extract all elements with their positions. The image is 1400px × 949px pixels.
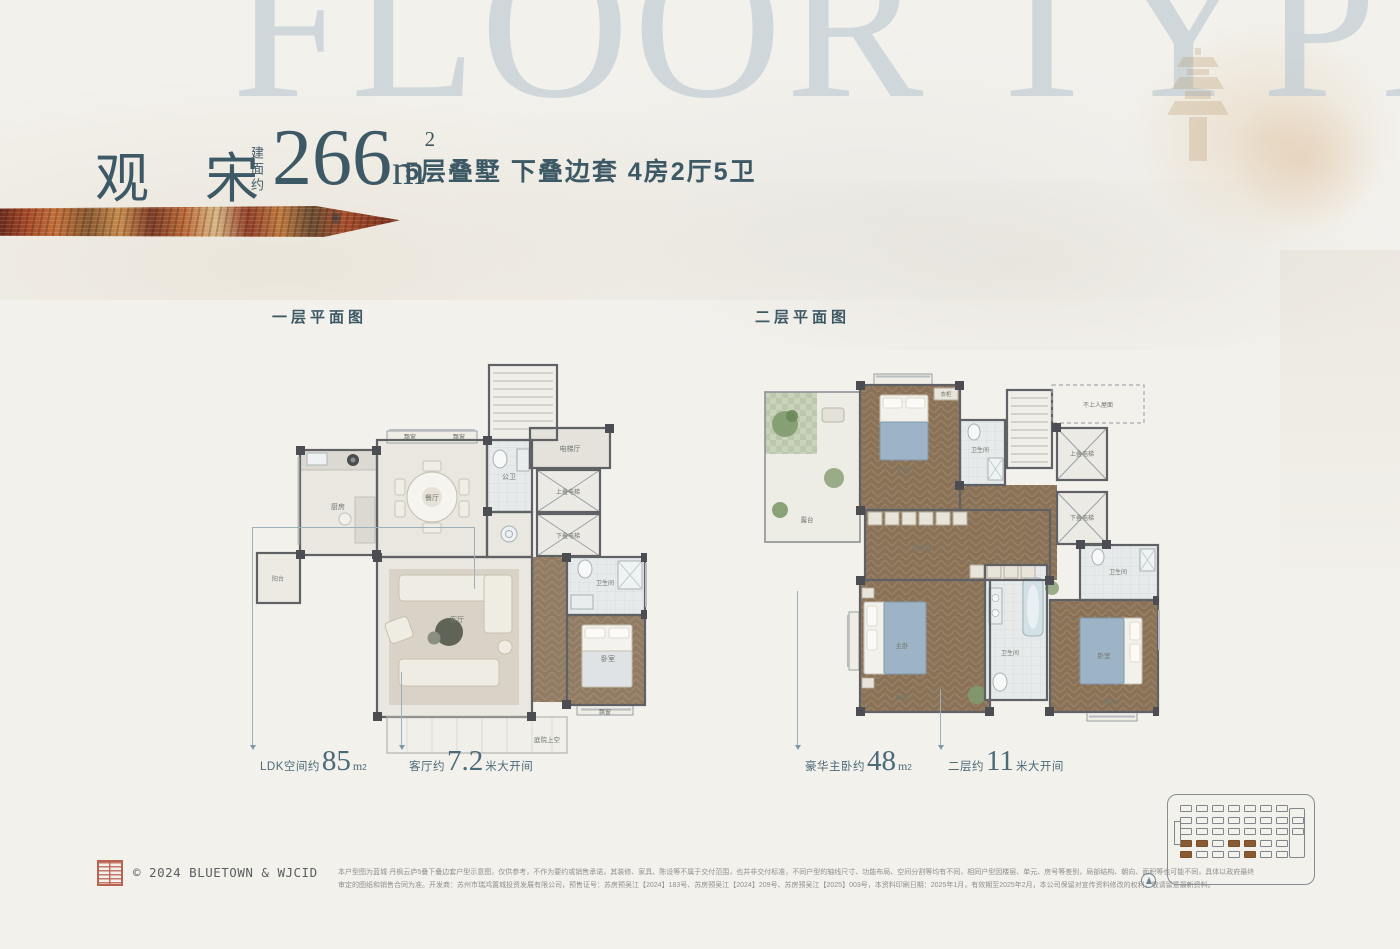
room-label-elevator-hall: 电梯厅: [560, 444, 581, 453]
minimap-highlight-building: [1244, 840, 1256, 847]
room-label-dining: 餐厅: [425, 493, 439, 502]
room-label-living: 客厅: [450, 615, 464, 624]
callout-sup: 2: [907, 763, 911, 772]
minimap-building: [1228, 851, 1240, 858]
minimap-left-building: [1174, 821, 1181, 845]
minimap-building: [1212, 805, 1224, 812]
callout-value: 11: [986, 747, 1014, 776]
first-floor-plan-title: 一层平面图: [272, 306, 367, 327]
callout-ldk-area: LDK空间约85m2: [260, 747, 367, 776]
room-label-elevator-up: 上叠电梯: [1070, 450, 1094, 458]
callout-prefix: 豪华主卧约: [805, 758, 865, 774]
site-minimap: [1167, 794, 1315, 885]
callout-line: [940, 689, 941, 745]
area-prefix-label: 建面约: [249, 146, 264, 194]
pagoda-silhouette: [1168, 46, 1228, 166]
room-label-bay1: 飘窗: [404, 433, 416, 441]
callout-second-floor-span: 二层约11米大开间: [948, 747, 1064, 776]
minimap-building: [1196, 828, 1208, 835]
callout-prefix: 二层约: [948, 758, 984, 774]
minimap-building: [1276, 851, 1288, 858]
minimap-highlight-building: [1244, 851, 1256, 858]
callout-master-area: 豪华主卧约48m2: [805, 747, 912, 776]
minimap-building: [1180, 817, 1192, 824]
callout-unit: m: [898, 759, 907, 774]
room-label-bath-right: 卫生间: [1109, 568, 1127, 576]
disclaimer-line-1: 本户型图为蓝城·丹枫云庐5叠下叠边套户型示意图，仅供参考，不作为要约或销售承诺，…: [338, 866, 1133, 879]
area-superscript: 2: [425, 127, 436, 151]
room-label-cloakroom: 衣帽间: [912, 543, 932, 552]
callout-value: 85: [322, 747, 351, 776]
minimap-tall-building: [1289, 808, 1305, 858]
minimap-building: [1260, 828, 1272, 835]
minimap-building: [1196, 851, 1208, 858]
area-number: 266: [272, 114, 392, 202]
minimap-highlight-building: [1228, 840, 1240, 847]
minimap-building: [1212, 817, 1224, 824]
room-label-powder: 公卫: [502, 473, 516, 481]
minimap-building: [1276, 817, 1288, 824]
background-wash: [1280, 250, 1400, 730]
minimap-building: [1180, 828, 1192, 835]
room-label-balcony: 阳台: [272, 575, 284, 583]
copyright-text: © 2024 BLUETOWN & WJCID: [133, 865, 318, 880]
room-label-bay3: 飘窗: [599, 708, 611, 716]
callout-arrow-icon: [938, 745, 944, 750]
callout-arrow-icon: [250, 745, 256, 750]
room-label-master-bath: 卫生间: [1001, 649, 1019, 657]
room-label-master: 主卧: [896, 641, 910, 650]
room-label-roof: 不上人屋面: [1083, 401, 1113, 409]
callout-sup: 2: [362, 763, 366, 772]
minimap-building: [1228, 817, 1240, 824]
poster-page: FLOOR TYPE 观宋 建面约 266m2 5层叠墅 下叠边套 4房2厅5卫…: [0, 0, 1400, 949]
room-label-bay2: 飘窗: [1104, 698, 1116, 706]
minimap-building: [1260, 817, 1272, 824]
room-label-bedroom-right: 卧室: [1098, 651, 1112, 660]
callout-unit: m: [353, 759, 362, 774]
minimap-building: [1260, 851, 1272, 858]
minimap-building: [1212, 828, 1224, 835]
minimap-highlight-building: [1180, 851, 1192, 858]
room-label-wardrobe: 衣柜: [940, 390, 952, 398]
minimap-building: [1276, 840, 1288, 847]
minimap-building: [1196, 805, 1208, 812]
callout-prefix: 客厅约: [409, 758, 445, 774]
minimap-building: [1276, 805, 1288, 812]
callout-suffix: 米大开间: [485, 758, 533, 774]
disclaimer-line-2: 审定的图纸和销售合同为准。开发商：苏州市瑞鸿置城投资发展有限公司，预售证号：苏房…: [338, 879, 1133, 892]
room-label-elevator-up: 上叠电梯: [556, 488, 580, 496]
minimap-building: [1180, 805, 1192, 812]
unit-spec: 5层叠墅 下叠边套 4房2厅5卫: [405, 152, 757, 188]
minimap-building: [1244, 805, 1256, 812]
background-wash: [640, 180, 1400, 350]
room-label-bedroom-top: 卧室: [898, 465, 912, 474]
callout-arrow-icon: [399, 745, 405, 750]
callout-living-span: 客厅约7.2米大开间: [409, 747, 533, 776]
plan2-master-furniture: [862, 588, 926, 688]
minimap-highlight-building: [1180, 840, 1192, 847]
minimap-building: [1244, 817, 1256, 824]
callout-line: [401, 672, 402, 745]
room-label-bath-top: 卫生间: [971, 446, 989, 454]
minimap-highlight-building: [1196, 840, 1208, 847]
second-floor-plan: 露台 卧室 衣柜 卫生间 不上人屋面 上叠电梯 下叠电梯 衣帽间 主卧 卫生间 …: [752, 350, 1162, 755]
room-label-bay2: 飘窗: [453, 433, 465, 441]
plan2-bedroom-right-furniture: [1080, 618, 1142, 684]
room-label-bath: 卫生间: [596, 579, 614, 587]
plan1-living-furniture: [384, 569, 519, 705]
compass-icon: [1141, 873, 1156, 888]
callout-value: 48: [867, 747, 896, 776]
minimap-building: [1276, 828, 1288, 835]
second-floor-plan-title: 二层平面图: [755, 306, 850, 327]
minimap-building: [1228, 828, 1240, 835]
room-label-courtyard: 庭院上空: [534, 735, 561, 744]
room-label-kitchen: 厨房: [331, 502, 345, 511]
disclaimer-text: 本户型图为蓝城·丹枫云庐5叠下叠边套户型示意图，仅供参考，不作为要约或销售承诺，…: [338, 866, 1133, 892]
minimap-building: [1228, 805, 1240, 812]
callout-value: 7.2: [447, 747, 483, 776]
minimap-building: [1212, 851, 1224, 858]
callout-line: [252, 527, 474, 528]
callout-line: [252, 527, 253, 745]
minimap-building: [1212, 840, 1224, 847]
callout-line: [474, 527, 475, 589]
callout-prefix: LDK空间约: [260, 758, 320, 774]
minimap-building: [1260, 840, 1272, 847]
minimap-building: [1244, 828, 1256, 835]
minimap-building: [1260, 805, 1272, 812]
minimap-building: [1196, 817, 1208, 824]
callout-arrow-icon: [795, 745, 801, 750]
red-seal-stamp: [97, 860, 123, 886]
first-floor-plan: 厨房 餐厅 公卫 电梯厅 上叠电梯 下叠电梯 客厅 卫生间 卧室 飘窗 飘窗 飘…: [237, 357, 647, 765]
room-label-bedroom: 卧室: [601, 654, 615, 663]
minimap-rows: [1180, 805, 1304, 858]
room-label-bay1: 飘窗: [896, 694, 908, 702]
room-label-elevator-down: 下叠电梯: [1070, 514, 1094, 522]
callout-line: [797, 591, 798, 745]
room-label-terrace: 露台: [801, 515, 814, 524]
callout-suffix: 米大开间: [1016, 758, 1064, 774]
room-label-elevator-down: 下叠电梯: [556, 532, 580, 540]
